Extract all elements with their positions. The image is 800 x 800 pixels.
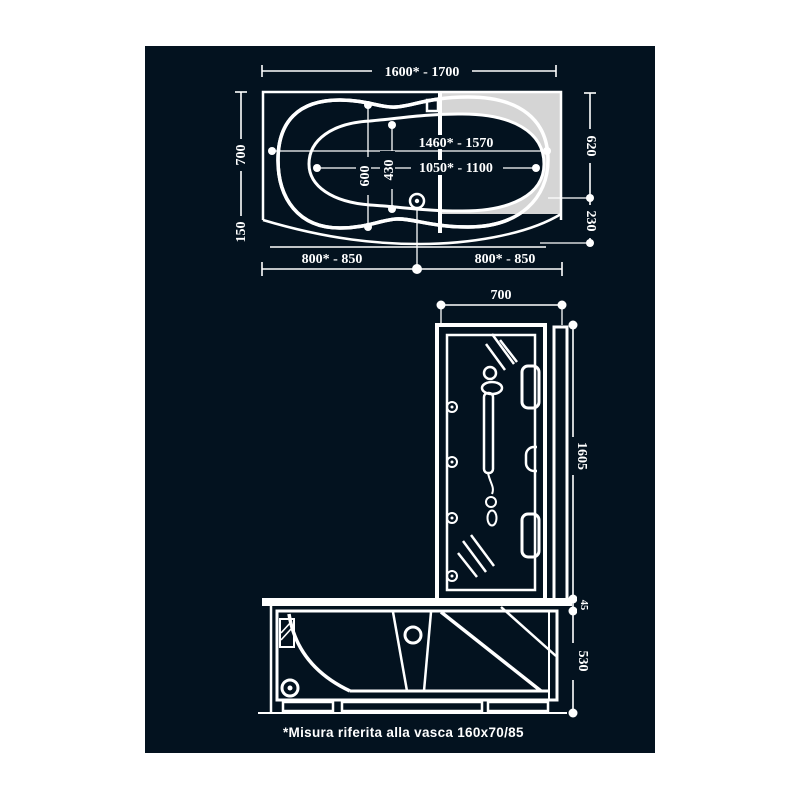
dim-tap-distance-label: 1050* - 1100 (419, 161, 493, 176)
dim-side-lower-label: 230 (583, 211, 598, 232)
dim-dot (313, 164, 321, 172)
dim-dot (543, 147, 551, 155)
jet-dot (451, 517, 454, 520)
dim-dot (569, 607, 578, 616)
dim-dot (388, 205, 396, 213)
dim-drain-right-label: 800* - 850 (475, 252, 536, 267)
jet-dot (451, 461, 454, 464)
jet-dot (451, 575, 454, 578)
dim-dot (532, 164, 540, 172)
dim-drain-left-label: 800* - 850 (302, 252, 363, 267)
footnote: *Misura riferita alla vasca 160x70/85 (283, 725, 524, 740)
dim-dot (364, 101, 372, 109)
siphon-dot (288, 686, 293, 691)
dim-drain-width-label: 430 (382, 160, 397, 181)
dim-basin-length-label: 1460* - 1570 (419, 136, 494, 151)
dim-dot (364, 223, 372, 231)
dim-overall-length-label: 1600* - 1700 (385, 65, 460, 80)
jet-dot (451, 406, 454, 409)
dim-dot (586, 194, 594, 202)
page: 1600* - 1700 700 150 620 230 (0, 0, 800, 800)
dim-basin-width-label: 600 (358, 166, 373, 187)
dim-column-height-label: 1605 (574, 442, 589, 470)
dim-dot (437, 301, 446, 310)
tub-rim-slab (262, 598, 572, 606)
dim-dot (569, 709, 578, 718)
dim-column-width-label: 700 (491, 288, 512, 303)
dim-tub-height-label: 530 (575, 651, 590, 672)
bathtub-technical-drawing: 1600* - 1700 700 150 620 230 (0, 0, 800, 800)
dim-rim-height-label: 45 (578, 600, 589, 611)
dim-width-label: 700 (234, 145, 249, 166)
drain-center-dot (415, 199, 419, 203)
dim-dot (412, 264, 422, 274)
dim-apron-label: 150 (234, 222, 249, 243)
dim-dot (586, 239, 594, 247)
dim-side-upper-label: 620 (583, 136, 598, 157)
dim-dot (558, 301, 567, 310)
dim-dot (388, 121, 396, 129)
dim-dot (569, 321, 578, 330)
dim-dot (268, 147, 276, 155)
